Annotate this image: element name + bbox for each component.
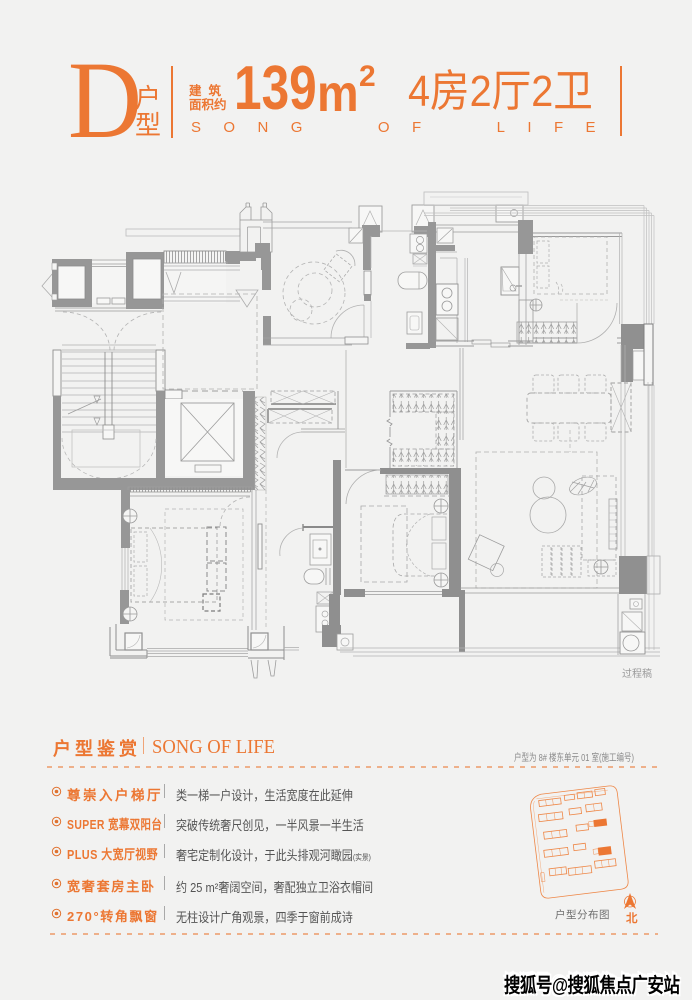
svg-text:过程稿: 过程稿 bbox=[622, 667, 652, 680]
